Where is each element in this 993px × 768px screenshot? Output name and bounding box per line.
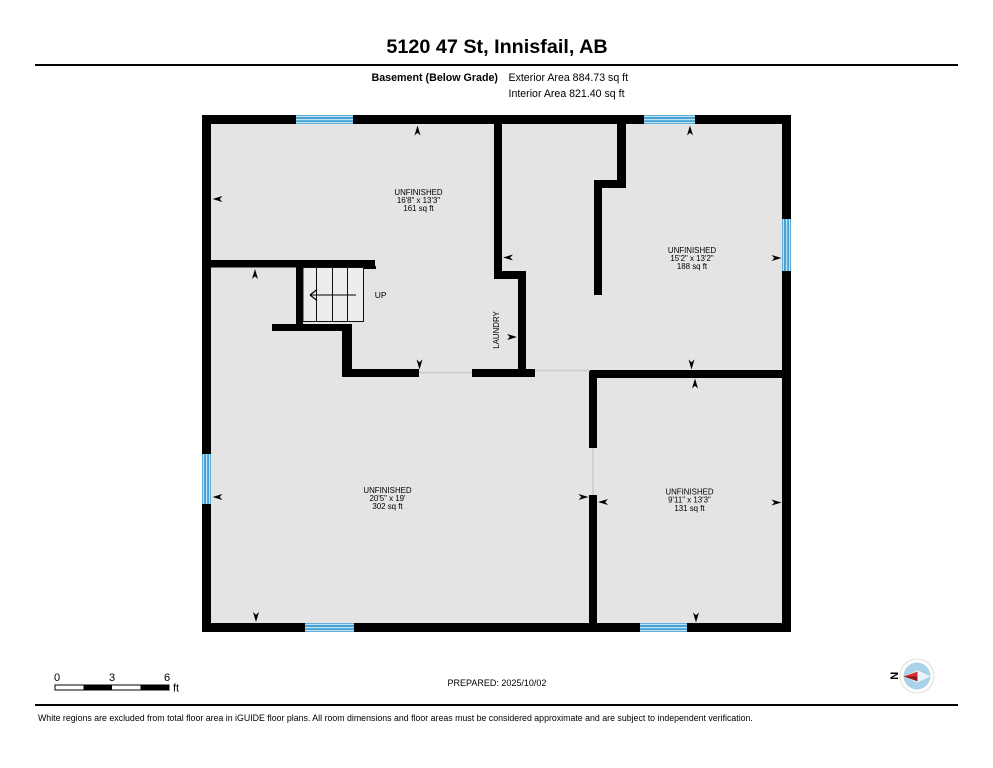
svg-text:Basement (Below Grade): Basement (Below Grade) — [371, 72, 498, 84]
svg-text:White regions are excluded fro: White regions are excluded from total fl… — [38, 713, 753, 723]
svg-text:N: N — [889, 672, 901, 680]
svg-text:5120 47 St, Innisfail, AB: 5120 47 St, Innisfail, AB — [386, 36, 607, 58]
svg-text:161 sq ft: 161 sq ft — [403, 204, 434, 213]
svg-text:188 sq ft: 188 sq ft — [677, 262, 708, 271]
svg-text:PREPARED: 2025/10/02: PREPARED: 2025/10/02 — [448, 678, 547, 688]
svg-text:0: 0 — [54, 672, 60, 684]
svg-text:UP: UP — [375, 290, 387, 300]
svg-text:302 sq ft: 302 sq ft — [372, 502, 403, 511]
svg-text:131 sq ft: 131 sq ft — [674, 504, 705, 513]
svg-text:Interior Area 821.40 sq ft: Interior Area 821.40 sq ft — [509, 88, 625, 100]
svg-text:6: 6 — [164, 672, 170, 684]
svg-text:LAUNDRY: LAUNDRY — [492, 310, 501, 348]
svg-text:3: 3 — [109, 672, 115, 684]
svg-text:ft: ft — [173, 683, 179, 695]
svg-text:Exterior Area 884.73 sq ft: Exterior Area 884.73 sq ft — [509, 72, 629, 84]
